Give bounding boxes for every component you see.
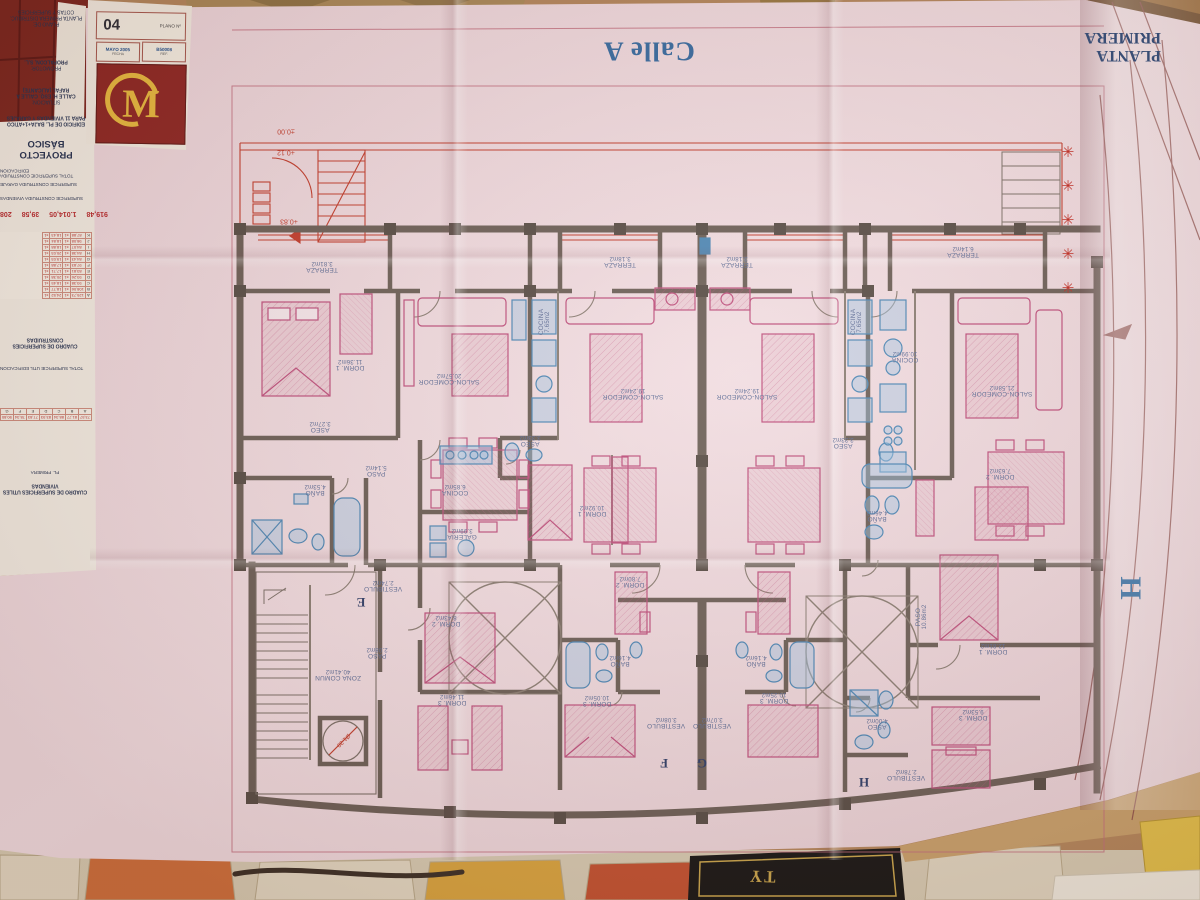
fecha-box: FECHA MAYO 2005 xyxy=(96,42,140,63)
room-label: COCINA6.85m2 xyxy=(442,482,468,496)
level-annotation: +0.12 xyxy=(277,149,295,156)
constructed-row-title-2: SUPERFICIE CONSTRUIDA GARAJE xyxy=(0,182,90,187)
useful-table-letters: ABCDEFGHI xyxy=(0,409,92,415)
constructed-row-title-1: TOTAL SUPERFICIE CONSTRUIDA EDIFICACION xyxy=(0,168,90,178)
star-mark-icon: ✳ xyxy=(1062,211,1075,229)
sheet-title-planta-primera: PLANTA PRIMERA xyxy=(1083,28,1161,64)
room-label: SALON-COMEDOR20.57m2 xyxy=(419,371,480,385)
useful-table-title: CUADRO DE SUPERFICIES UTILES VIVIENDAS xyxy=(0,482,90,494)
room-label: ASEO4.00m2 xyxy=(866,716,887,730)
ref-box: REF. B50008 xyxy=(142,42,186,63)
paper-fold-right xyxy=(1080,0,1200,810)
room-label: DORM. 111.36m2 xyxy=(336,357,365,371)
paper-fold-crease xyxy=(816,0,844,860)
useful-table-values: 73,5781,7788,3483,9377,8378,3490,8076,34… xyxy=(0,415,92,421)
room-label: COCINA7.65m2 xyxy=(538,309,552,335)
room-label: VESTIBULO3.07m2 xyxy=(693,715,731,729)
useful-row-title: TOTAL SUPERFICIE UTIL EDIFICACION xyxy=(0,366,90,371)
room-label: DORM. 39.53m2 xyxy=(959,707,988,721)
room-label: TERRAZA3.81m2 xyxy=(306,259,338,273)
photo-of-floor-plan: Calle A PLANTA PRIMERA H Ø1.30 PLANO Nº … xyxy=(0,0,1200,900)
room-label: COCINA7.65m2 xyxy=(850,309,864,335)
room-label: VESTIBULO3.08m2 xyxy=(647,715,685,729)
room-label: TERRAZA6.14m2 xyxy=(947,244,979,258)
company-logo: M xyxy=(95,63,186,145)
paper-fold-crease xyxy=(440,0,468,860)
room-label: PASO10.86m2 xyxy=(915,605,929,630)
level-annotation: +0.83 xyxy=(280,218,298,225)
star-mark-icon: ✳ xyxy=(1062,279,1075,297)
useful-row-label: PL. PRIMERA xyxy=(0,470,90,475)
street-label-calle-a: Calle A xyxy=(603,36,695,67)
constructed-table-row: C93,38x118,45x1 xyxy=(43,281,92,287)
constructed-table: A125,73x124,52x1B108,06x118,77x1C93,38x1… xyxy=(0,232,92,299)
room-label: ZONA COMUN40.41m2 xyxy=(315,667,361,681)
room-label: DORM. 310.25m2 xyxy=(760,690,789,704)
paper-fold-crease xyxy=(90,548,1110,570)
room-label: BAÑO4.53m2 xyxy=(304,482,325,496)
room-label: PASO2.08m2 xyxy=(366,645,387,659)
constructed-table-title: CUADRO DE SUPERFICIES CONSTRUIDAS xyxy=(0,336,90,348)
star-mark-icon: ✳ xyxy=(1062,143,1075,161)
room-label: ASEO3.33m2 xyxy=(519,433,540,447)
street-label-calle-h: H xyxy=(1113,576,1147,599)
constructed-table-row: G84,43x119,03x1 xyxy=(43,257,92,263)
unit-letter-g: G xyxy=(697,755,707,771)
constructed-table-row: J98,08x118,84x1 xyxy=(43,239,92,245)
constructed-table-row: B108,06x118,77x1 xyxy=(43,287,92,293)
plano-number-box: PLANO Nº 04 xyxy=(96,11,186,41)
room-label: DORM. 310.05m2 xyxy=(583,693,612,707)
useful-table: 73,5781,7788,3483,9377,8378,3490,8076,34… xyxy=(0,408,92,421)
constructed-row-title-3: SUPERFICIE CONSTRUIDA VIVIENDAS xyxy=(0,196,90,201)
room-label: DORM. 27.63m2 xyxy=(986,466,1015,480)
constructed-table-row: D93,26x120,38x1 xyxy=(43,275,92,281)
constructed-table-row: I84,07x118,88x1 xyxy=(43,245,92,251)
star-mark-icon: ✳ xyxy=(1062,245,1075,263)
level-annotation: ±0.00 xyxy=(277,128,294,135)
promotor-block: PROMOTOR: PROPALCON, S.L. xyxy=(0,58,92,70)
room-label: DORM. 311.46m2 xyxy=(438,692,467,706)
room-label: BAÑO4.46m2 xyxy=(866,508,887,522)
room-label: DORM. 27.80m2 xyxy=(616,574,645,588)
room-label: DORM. 112.81m2 xyxy=(979,641,1008,655)
room-label: BAÑO4.16m2 xyxy=(609,653,630,667)
room-label: DORM. 110.92m2 xyxy=(578,503,607,517)
room-label: ASEO3.27m2 xyxy=(309,419,330,433)
room-label: VESTIBULO2.74m2 xyxy=(364,578,402,592)
constructed-table-row: K87,88x118,43x1 xyxy=(43,233,92,239)
constructed-totals: 919,481.014,0539,58208 xyxy=(0,210,112,217)
unit-letter-h: H xyxy=(859,774,869,790)
constructed-table-row: H84,38x120,03x1 xyxy=(43,251,92,257)
room-label: COCINA10.99m2 xyxy=(892,349,918,363)
room-label: TERRAZA3.18m2 xyxy=(721,254,753,268)
constructed-table-row: F97,83x117,88x1 xyxy=(43,263,92,269)
constructed-table-row: A125,73x124,52x1 xyxy=(43,293,92,299)
room-label: SALON-COMEDOR21.58m2 xyxy=(972,383,1033,397)
magazine-title-fragment: TY xyxy=(748,866,776,887)
room-label: DORM. 28.43m2 xyxy=(432,613,461,627)
logo-letter: M xyxy=(122,84,160,125)
plano-de-block: PLANO DE: PLANTA PRIMERA DISTRIBUC. COTA… xyxy=(0,8,92,25)
building-block: EDIFICIO DE PL. BAJA+1+ATICO PARA 11 VIV… xyxy=(0,114,92,126)
room-label: BAÑO4.16m2 xyxy=(745,653,766,667)
room-label: TERRAZA3.18m2 xyxy=(604,254,636,268)
unit-letter-e: E xyxy=(357,594,366,610)
constructed-table-row: E83,81x117,71x1 xyxy=(43,269,92,275)
project-type-title: PROYECTO BÁSICO xyxy=(0,138,92,160)
room-label: GALERIA3.99m2 xyxy=(447,526,477,540)
star-mark-icon: ✳ xyxy=(1062,177,1075,195)
unit-letter-f: F xyxy=(660,755,668,771)
plano-number-label: PLANO Nº xyxy=(156,24,185,30)
room-label: SALON-COMEDOR19.24m2 xyxy=(717,386,778,400)
room-label: VESTIBULO2.78m2 xyxy=(887,767,925,781)
room-label: SALON-COMEDOR19.24m2 xyxy=(603,386,664,400)
room-label: ASEO3.33m2 xyxy=(832,435,853,449)
plano-number: 04 xyxy=(97,17,126,34)
situacion-block: SITUACION: CALLE H, ESQ. CALLE A RAFAL (… xyxy=(0,86,92,103)
room-label: PASO5.14m2 xyxy=(365,463,386,477)
